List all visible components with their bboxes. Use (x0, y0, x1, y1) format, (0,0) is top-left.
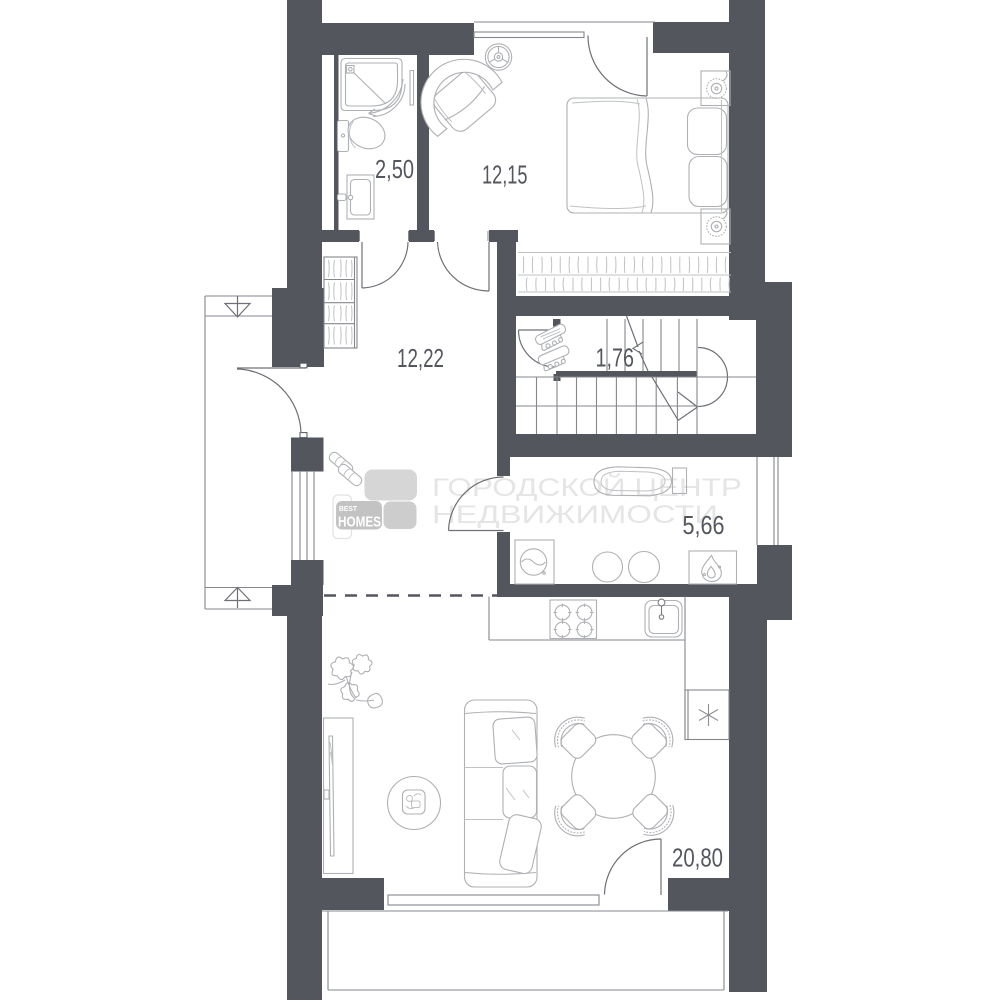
svg-text:1,76: 1,76 (596, 345, 635, 373)
svg-text:HOMES: HOMES (338, 514, 381, 531)
svg-text:12,22: 12,22 (397, 345, 444, 373)
svg-text:2,50: 2,50 (375, 156, 414, 184)
svg-text:20,80: 20,80 (672, 845, 723, 873)
svg-text:12,15: 12,15 (482, 162, 528, 190)
svg-text:5,66: 5,66 (683, 512, 725, 540)
svg-text:BEST: BEST (339, 504, 357, 513)
svg-text:НЕДВИЖИМОСТИ: НЕДВИЖИМОСТИ (432, 501, 718, 529)
svg-text:ГОРОДСКОЙ ЦЕНТР: ГОРОДСКОЙ ЦЕНТР (432, 472, 742, 502)
